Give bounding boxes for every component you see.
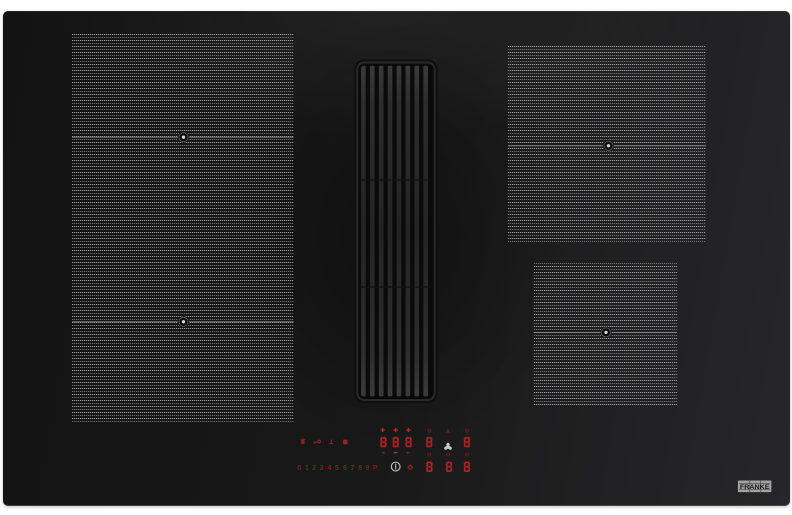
svg-text:8: 8 bbox=[358, 465, 362, 472]
svg-text:9: 9 bbox=[366, 465, 370, 472]
svg-text:1: 1 bbox=[305, 465, 309, 472]
svg-text:3: 3 bbox=[320, 465, 324, 472]
svg-text:6: 6 bbox=[343, 465, 347, 472]
svg-text:A: A bbox=[446, 429, 450, 435]
svg-text:5: 5 bbox=[335, 465, 339, 472]
svg-text:P: P bbox=[373, 465, 378, 472]
svg-text:2: 2 bbox=[312, 465, 316, 472]
svg-text:FRANKE: FRANKE bbox=[740, 484, 770, 491]
svg-text:0: 0 bbox=[297, 465, 301, 472]
svg-text:4: 4 bbox=[328, 465, 332, 472]
svg-text:7: 7 bbox=[351, 465, 355, 472]
